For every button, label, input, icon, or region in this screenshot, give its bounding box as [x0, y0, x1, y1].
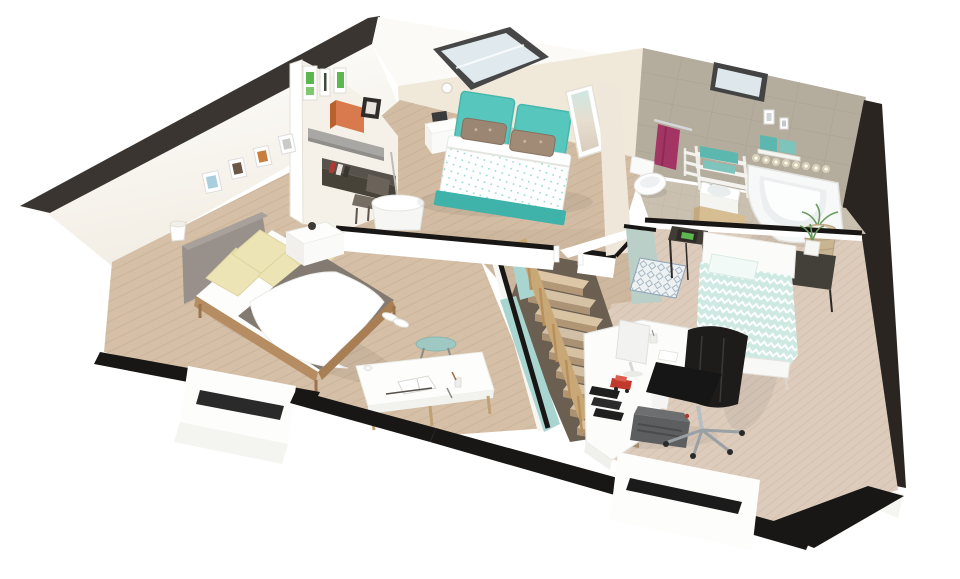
door-jamb: [554, 246, 559, 262]
photo-frame-shelf: [361, 97, 382, 119]
floorplan-svg: [0, 0, 960, 579]
smoke-detector: [442, 83, 452, 93]
floorplan-render: [0, 0, 960, 579]
teal-towel-stack: [760, 135, 777, 152]
letter-trays: [589, 386, 624, 421]
wall-sconce: [170, 221, 186, 241]
